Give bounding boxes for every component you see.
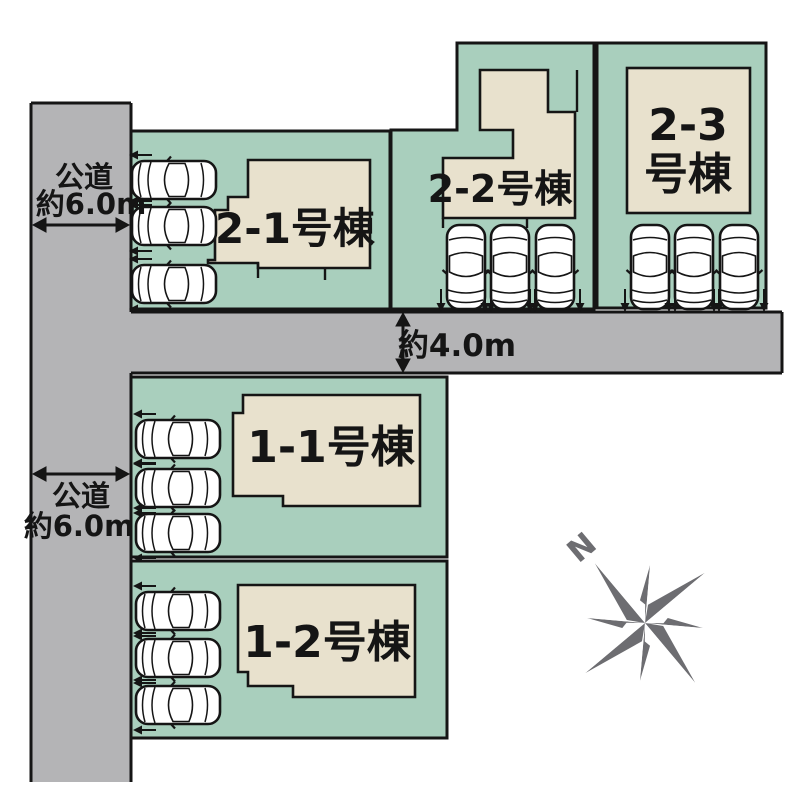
site-plan-canvas: 公道 約6.0m 公道 約6.0m 約4.0m 2-1号棟 2-2号棟 2-3 … xyxy=(0,0,802,794)
middle-road-width-label: 約4.0m xyxy=(398,328,516,364)
building-2-1-label: 2-1号棟 xyxy=(215,204,376,253)
building-1-1-label: 1-1号棟 xyxy=(247,422,415,473)
building-2-2-label: 2-2号棟 xyxy=(428,167,574,211)
site-plan-drawing: 公道 約6.0m 公道 約6.0m 約4.0m 2-1号棟 2-2号棟 2-3 … xyxy=(0,0,802,794)
west-road-lower-name-label: 公道 xyxy=(52,479,110,513)
west-road-upper-width-label: 約6.0m xyxy=(36,187,147,221)
building-2-3-label-line2: 号棟 xyxy=(644,149,733,200)
building-2-3-label-line1: 2-3 xyxy=(648,100,728,151)
west-road-lower-width-label: 約6.0m xyxy=(24,509,135,543)
building-1-2-label: 1-2号棟 xyxy=(243,617,411,668)
